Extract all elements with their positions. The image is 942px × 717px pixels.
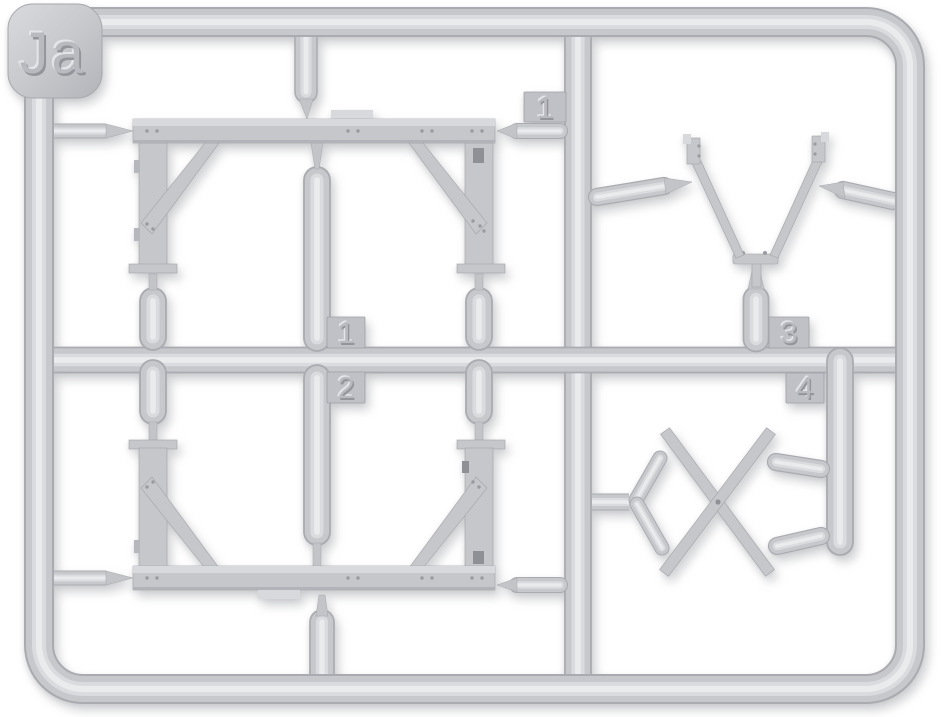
foot-plate-top-right <box>457 264 505 273</box>
gate-towbar-right-taper <box>819 182 845 198</box>
towbar-arm-right <box>770 160 822 258</box>
tag-3: 333 <box>769 314 809 352</box>
svg-text:4: 4 <box>796 370 813 405</box>
foot-plate-bottom-right <box>457 440 505 449</box>
part-4-scissor-brace <box>660 428 776 577</box>
towbar-stem <box>752 263 761 287</box>
svg-text:Ja: Ja <box>19 21 86 86</box>
leg-slot <box>462 461 469 473</box>
tag-1-top: 111 <box>524 89 566 127</box>
tag-1-mid: 111 <box>327 314 365 352</box>
gate-bottom-riser-neck <box>316 595 328 616</box>
beam-top-edge <box>133 140 495 143</box>
gate-beam-bottom-left-taper <box>106 571 133 585</box>
tag-4: 444 <box>786 369 824 407</box>
tag-4-label: 444 <box>795 369 815 407</box>
beam-bottom-block <box>258 590 300 599</box>
beam-bottom-face <box>133 566 495 573</box>
gate-scissor-right-upper <box>776 462 821 469</box>
scissor-pivot <box>715 499 720 504</box>
foot-plate-bottom-left <box>129 440 177 449</box>
gate-beam-top-right-taper <box>497 123 517 139</box>
sprue-id-tab: JaJaJa <box>8 4 102 98</box>
leg-tab <box>134 228 140 241</box>
foot-plate-top-left <box>129 264 177 273</box>
svg-text:3: 3 <box>780 315 797 350</box>
shock-pin-top-left <box>149 274 157 290</box>
leg-slot <box>473 551 484 564</box>
svg-text:1: 1 <box>536 90 553 125</box>
gate-beam-top-left-taper <box>106 124 133 138</box>
center-cylinder-bottom-pin <box>313 543 321 568</box>
sprue-photo: 111 111 222 333 444 JaJaJa <box>0 0 942 717</box>
svg-text:2: 2 <box>337 370 354 405</box>
tag-1-top-label: 111 <box>535 89 555 127</box>
shock-pin-bottom-right <box>475 422 483 440</box>
center-cylinder-top-pin <box>311 143 323 169</box>
leg-tab <box>134 160 140 173</box>
part-2-frame-crossmember-bottom <box>129 373 505 599</box>
gate-scissor-chevron-lower <box>637 504 662 548</box>
towbar-arm-left <box>692 161 744 258</box>
towbar-fork-left-step <box>683 134 691 144</box>
beam-top-block <box>331 110 373 120</box>
part-1-frame-crossmember-top <box>129 110 505 338</box>
tag-3-label: 333 <box>779 314 799 352</box>
sprue-render: 111 111 222 333 444 JaJaJa <box>0 0 942 717</box>
beam-bottom-edge <box>133 587 495 590</box>
part-3-tow-bar <box>683 132 829 339</box>
shock-pin-bottom-left <box>149 422 157 440</box>
tag-1-mid-label: 111 <box>336 314 356 352</box>
gate-towbar-left-taper <box>664 178 692 194</box>
gate-beam-bottom-right-taper <box>497 578 517 592</box>
leg-tab <box>134 540 140 553</box>
shock-pin-top-right <box>475 274 483 290</box>
beam-top-face <box>133 119 495 126</box>
gate-scissor-chevron-upper <box>636 458 660 500</box>
gate-top-center-taper <box>299 99 313 119</box>
tag-2-label: 222 <box>336 369 356 407</box>
svg-text:1: 1 <box>337 315 354 350</box>
sprue-id-label: JaJaJa <box>17 19 88 89</box>
leg-slot <box>473 148 484 163</box>
gate-towbar-left <box>597 186 664 197</box>
towbar-fork-right-step <box>821 132 829 142</box>
gate-towbar-right <box>843 190 893 201</box>
gate-scissor-right-lower <box>777 536 821 546</box>
tag-2: 222 <box>327 369 365 407</box>
